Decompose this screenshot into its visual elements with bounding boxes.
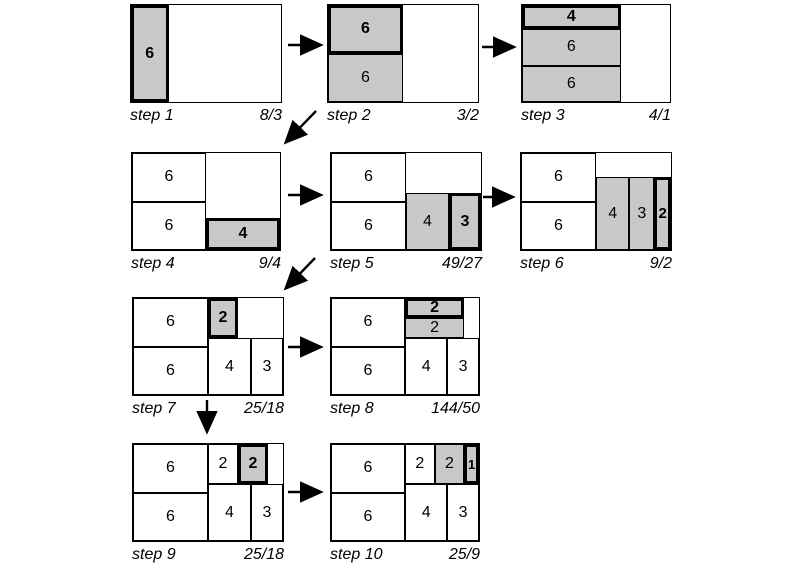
- aspect-ratio-label: 8/3: [260, 107, 282, 125]
- tile-6: 6: [331, 153, 406, 202]
- step-label: step 7: [132, 400, 176, 418]
- tile-4: 4: [206, 218, 280, 250]
- step-1: 6step 18/3: [130, 4, 282, 103]
- tile-3: 3: [251, 484, 283, 541]
- tile-4: 4: [522, 5, 621, 29]
- step-10-labels: step 1025/9: [330, 546, 480, 564]
- step-3-labels: step 34/1: [521, 107, 671, 125]
- step-8: 664322step 8144/50: [330, 297, 480, 396]
- step-3-outer-rect: 466: [521, 4, 671, 103]
- tile-2: 2: [405, 444, 435, 484]
- tile-6: 6: [331, 298, 405, 347]
- step-6: 66432step 69/2: [520, 152, 672, 251]
- tile-1: 1: [464, 444, 479, 484]
- step-label: step 1: [130, 107, 174, 125]
- tile-2: 2: [208, 444, 238, 484]
- step-2: 66step 23/2: [327, 4, 479, 103]
- step-label: step 6: [520, 255, 564, 273]
- step-4-outer-rect: 664: [131, 152, 281, 251]
- step-6-outer-rect: 66432: [520, 152, 672, 251]
- step-7: 66432step 725/18: [132, 297, 284, 396]
- tile-3: 3: [447, 484, 479, 541]
- tile-2: 2: [405, 298, 464, 318]
- step-5-outer-rect: 6643: [330, 152, 482, 251]
- step-8-outer-rect: 664322: [330, 297, 480, 396]
- tile-4: 4: [596, 177, 629, 250]
- tile-2: 2: [208, 298, 238, 338]
- tile-6: 6: [331, 347, 405, 396]
- tile-2: 2: [654, 177, 671, 250]
- tile-6: 6: [521, 202, 596, 251]
- step-6-labels: step 69/2: [520, 255, 672, 273]
- step-5: 6643step 549/27: [330, 152, 482, 251]
- tile-6: 6: [331, 493, 405, 542]
- aspect-ratio-label: 144/50: [431, 400, 480, 418]
- tile-4: 4: [208, 484, 251, 541]
- step-2-outer-rect: 66: [327, 4, 479, 103]
- tile-4: 4: [405, 338, 447, 395]
- tile-4: 4: [406, 193, 449, 250]
- step-1-labels: step 18/3: [130, 107, 282, 125]
- aspect-ratio-label: 25/9: [449, 546, 480, 564]
- tile-3: 3: [449, 193, 481, 250]
- tile-6: 6: [132, 153, 206, 202]
- step-7-outer-rect: 66432: [132, 297, 284, 396]
- tile-6: 6: [328, 5, 403, 54]
- tile-4: 4: [208, 338, 251, 395]
- aspect-ratio-label: 3/2: [457, 107, 479, 125]
- step-label: step 10: [330, 546, 382, 564]
- step-label: step 3: [521, 107, 565, 125]
- step-8-labels: step 8144/50: [330, 400, 480, 418]
- step-label: step 8: [330, 400, 374, 418]
- tile-6: 6: [331, 202, 406, 251]
- arrow-3: [287, 111, 316, 141]
- tile-6: 6: [133, 298, 208, 347]
- aspect-ratio-label: 9/4: [259, 255, 281, 273]
- aspect-ratio-label: 49/27: [442, 255, 482, 273]
- step-label: step 2: [327, 107, 371, 125]
- aspect-ratio-label: 25/18: [244, 400, 284, 418]
- step-label: step 5: [330, 255, 374, 273]
- diagram: 6step 18/366step 23/2466step 34/1664step…: [0, 0, 800, 564]
- aspect-ratio-label: 4/1: [649, 107, 671, 125]
- step-3: 466step 34/1: [521, 4, 671, 103]
- step-10-outer-rect: 6643221: [330, 443, 480, 542]
- step-1-outer-rect: 6: [130, 4, 282, 103]
- step-10: 6643221step 1025/9: [330, 443, 480, 542]
- step-7-labels: step 725/18: [132, 400, 284, 418]
- tile-6: 6: [133, 347, 208, 396]
- arrow-6: [287, 258, 315, 287]
- tile-6: 6: [133, 444, 208, 493]
- step-9-labels: step 925/18: [132, 546, 284, 564]
- step-4-labels: step 49/4: [131, 255, 281, 273]
- step-label: step 4: [131, 255, 175, 273]
- tile-2: 2: [405, 318, 464, 338]
- tile-6: 6: [131, 5, 169, 102]
- tile-6: 6: [522, 66, 621, 102]
- tile-6: 6: [331, 444, 405, 493]
- step-9: 664322step 925/18: [132, 443, 284, 542]
- tile-3: 3: [629, 177, 654, 250]
- tile-4: 4: [405, 484, 447, 541]
- tile-2: 2: [435, 444, 465, 484]
- tile-3: 3: [447, 338, 479, 395]
- step-2-labels: step 23/2: [327, 107, 479, 125]
- tile-6: 6: [132, 202, 206, 251]
- step-4: 664step 49/4: [131, 152, 281, 251]
- tile-2: 2: [238, 444, 268, 484]
- tile-6: 6: [522, 29, 621, 65]
- step-9-outer-rect: 664322: [132, 443, 284, 542]
- aspect-ratio-label: 25/18: [244, 546, 284, 564]
- step-label: step 9: [132, 546, 176, 564]
- aspect-ratio-label: 9/2: [650, 255, 672, 273]
- tile-6: 6: [328, 54, 403, 103]
- step-5-labels: step 549/27: [330, 255, 482, 273]
- tile-6: 6: [133, 493, 208, 542]
- tile-6: 6: [521, 153, 596, 202]
- tile-3: 3: [251, 338, 283, 395]
